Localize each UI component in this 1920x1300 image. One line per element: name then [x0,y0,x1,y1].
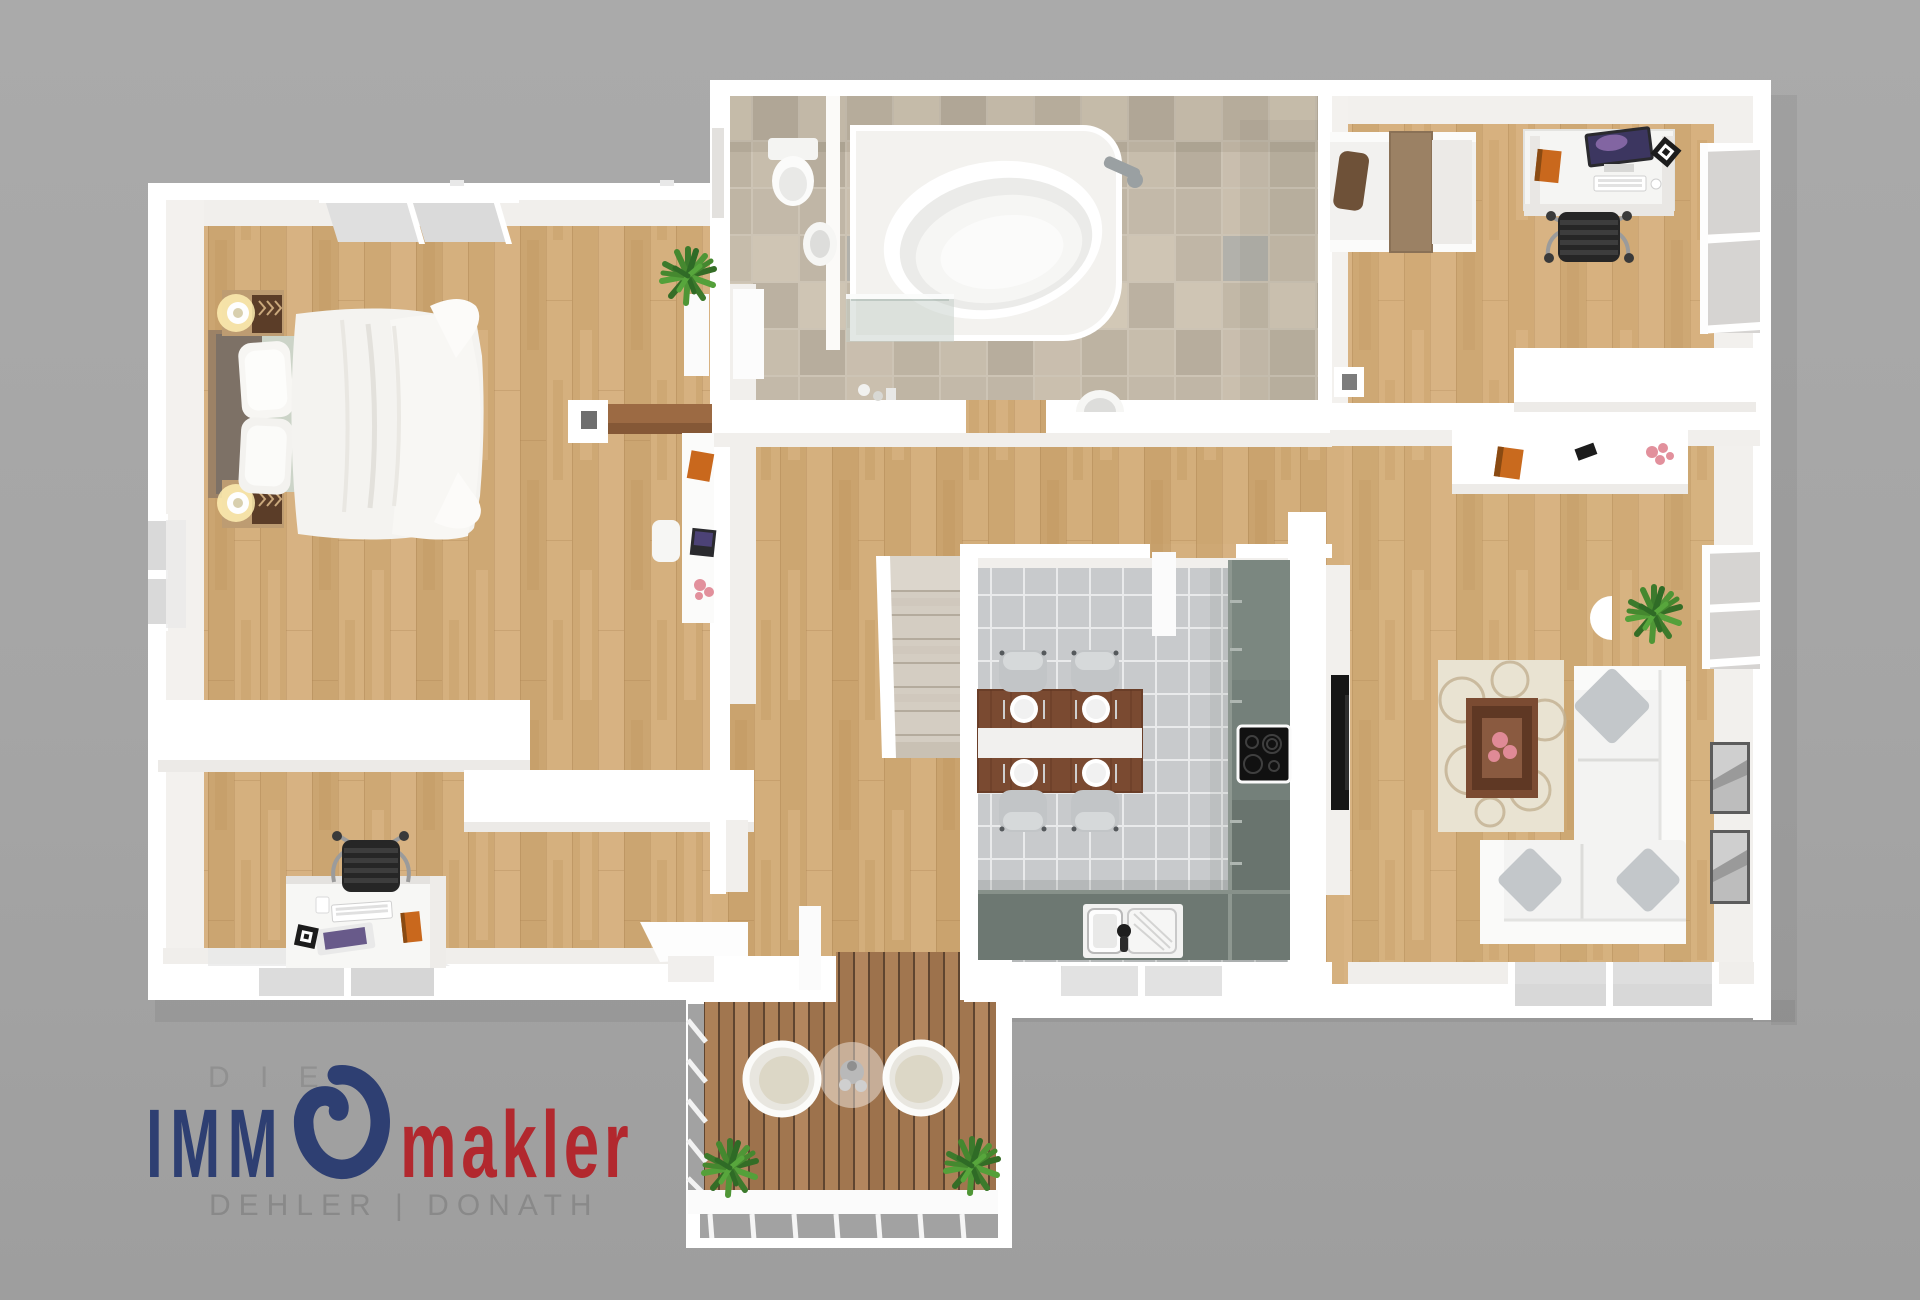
svg-text:makler: makler [400,1092,633,1198]
svg-text:IMM: IMM [146,1090,285,1198]
svg-text:D I E: D I E [208,1061,330,1094]
svg-text:DEHLER | DONATH: DEHLER | DONATH [209,1189,600,1222]
